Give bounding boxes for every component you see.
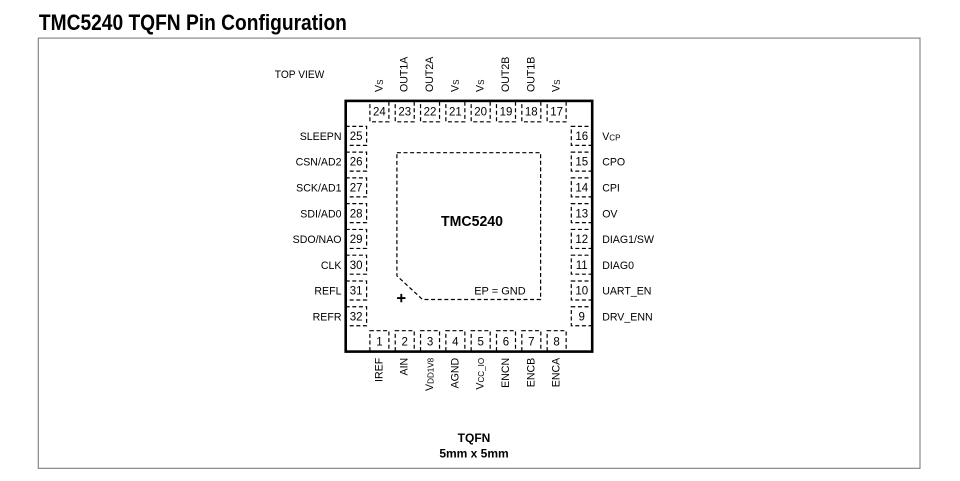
svg-text:12: 12 — [575, 234, 588, 246]
svg-text:EP = GND: EP = GND — [474, 286, 526, 298]
svg-text:ENCA: ENCA — [551, 357, 563, 387]
svg-text:VCP: VCP — [602, 131, 620, 143]
svg-text:28: 28 — [350, 208, 363, 220]
svg-text:CPI: CPI — [602, 182, 620, 194]
svg-text:27: 27 — [350, 182, 363, 194]
svg-text:OUT2A: OUT2A — [424, 56, 436, 92]
svg-text:11: 11 — [576, 260, 588, 272]
svg-text:SDI/AD0: SDI/AD0 — [300, 208, 341, 220]
svg-text:DRV_ENN: DRV_ENN — [602, 311, 652, 323]
svg-text:19: 19 — [500, 106, 513, 118]
svg-text:OUT1B: OUT1B — [525, 57, 537, 92]
svg-text:23: 23 — [398, 106, 411, 118]
svg-text:TOP VIEW: TOP VIEW — [275, 69, 325, 81]
svg-text:TMC5240 TQFN Pin Configuration: TMC5240 TQFN Pin Configuration — [39, 10, 347, 35]
svg-text:29: 29 — [350, 234, 363, 246]
svg-text:SDO/NAO: SDO/NAO — [293, 234, 342, 246]
svg-text:10: 10 — [575, 286, 588, 298]
svg-text:CSN/AD2: CSN/AD2 — [296, 157, 342, 169]
svg-text:4: 4 — [452, 336, 459, 348]
svg-text:7: 7 — [528, 336, 534, 348]
svg-text:15: 15 — [575, 157, 588, 169]
svg-text:AGND: AGND — [449, 357, 461, 388]
svg-text:VDD1V8: VDD1V8 — [424, 357, 436, 391]
svg-text:VS: VS — [373, 79, 385, 92]
svg-text:32: 32 — [350, 311, 363, 323]
svg-text:VS: VS — [475, 79, 487, 92]
svg-text:22: 22 — [424, 106, 437, 118]
svg-text:AIN: AIN — [399, 358, 411, 376]
svg-text:REFL: REFL — [314, 286, 341, 298]
svg-text:SLEEPN: SLEEPN — [300, 131, 342, 143]
svg-text:17: 17 — [550, 106, 563, 118]
svg-text:VS: VS — [551, 79, 563, 92]
svg-text:ENCN: ENCN — [500, 358, 512, 388]
svg-text:30: 30 — [350, 260, 363, 272]
svg-text:OUT1A: OUT1A — [399, 56, 411, 92]
svg-text:DIAG0: DIAG0 — [602, 260, 634, 272]
svg-text:ENCB: ENCB — [525, 358, 537, 387]
svg-text:25: 25 — [350, 131, 363, 143]
svg-text:SCK/AD1: SCK/AD1 — [296, 182, 341, 194]
svg-text:CPO: CPO — [602, 157, 625, 169]
svg-text:5: 5 — [477, 336, 483, 348]
svg-text:21: 21 — [449, 106, 462, 118]
svg-text:DIAG1/SW: DIAG1/SW — [602, 234, 654, 246]
svg-text:3: 3 — [427, 336, 433, 348]
svg-text:VCC_IO: VCC_IO — [475, 358, 487, 390]
svg-text:31: 31 — [350, 286, 363, 298]
svg-text:16: 16 — [575, 131, 588, 143]
svg-text:18: 18 — [525, 106, 538, 118]
svg-text:TQFN: TQFN — [458, 431, 491, 445]
svg-text:1: 1 — [376, 336, 382, 348]
svg-text:TMC5240: TMC5240 — [441, 213, 503, 230]
svg-text:20: 20 — [474, 106, 487, 118]
svg-text:14: 14 — [575, 182, 588, 194]
svg-text:6: 6 — [503, 336, 509, 348]
svg-text:26: 26 — [350, 157, 363, 169]
svg-text:OUT2B: OUT2B — [500, 57, 512, 92]
svg-text:13: 13 — [575, 208, 588, 220]
svg-text:UART_EN: UART_EN — [602, 286, 651, 298]
svg-text:9: 9 — [579, 311, 585, 323]
svg-text:5mm x 5mm: 5mm x 5mm — [439, 447, 508, 461]
svg-text:IREF: IREF — [373, 357, 385, 382]
svg-text:REFR: REFR — [313, 311, 342, 323]
svg-text:CLK: CLK — [321, 260, 342, 272]
svg-text:8: 8 — [553, 336, 559, 348]
svg-text:2: 2 — [402, 336, 408, 348]
svg-text:VS: VS — [449, 79, 461, 92]
svg-text:OV: OV — [602, 208, 618, 220]
svg-text:24: 24 — [373, 106, 386, 118]
